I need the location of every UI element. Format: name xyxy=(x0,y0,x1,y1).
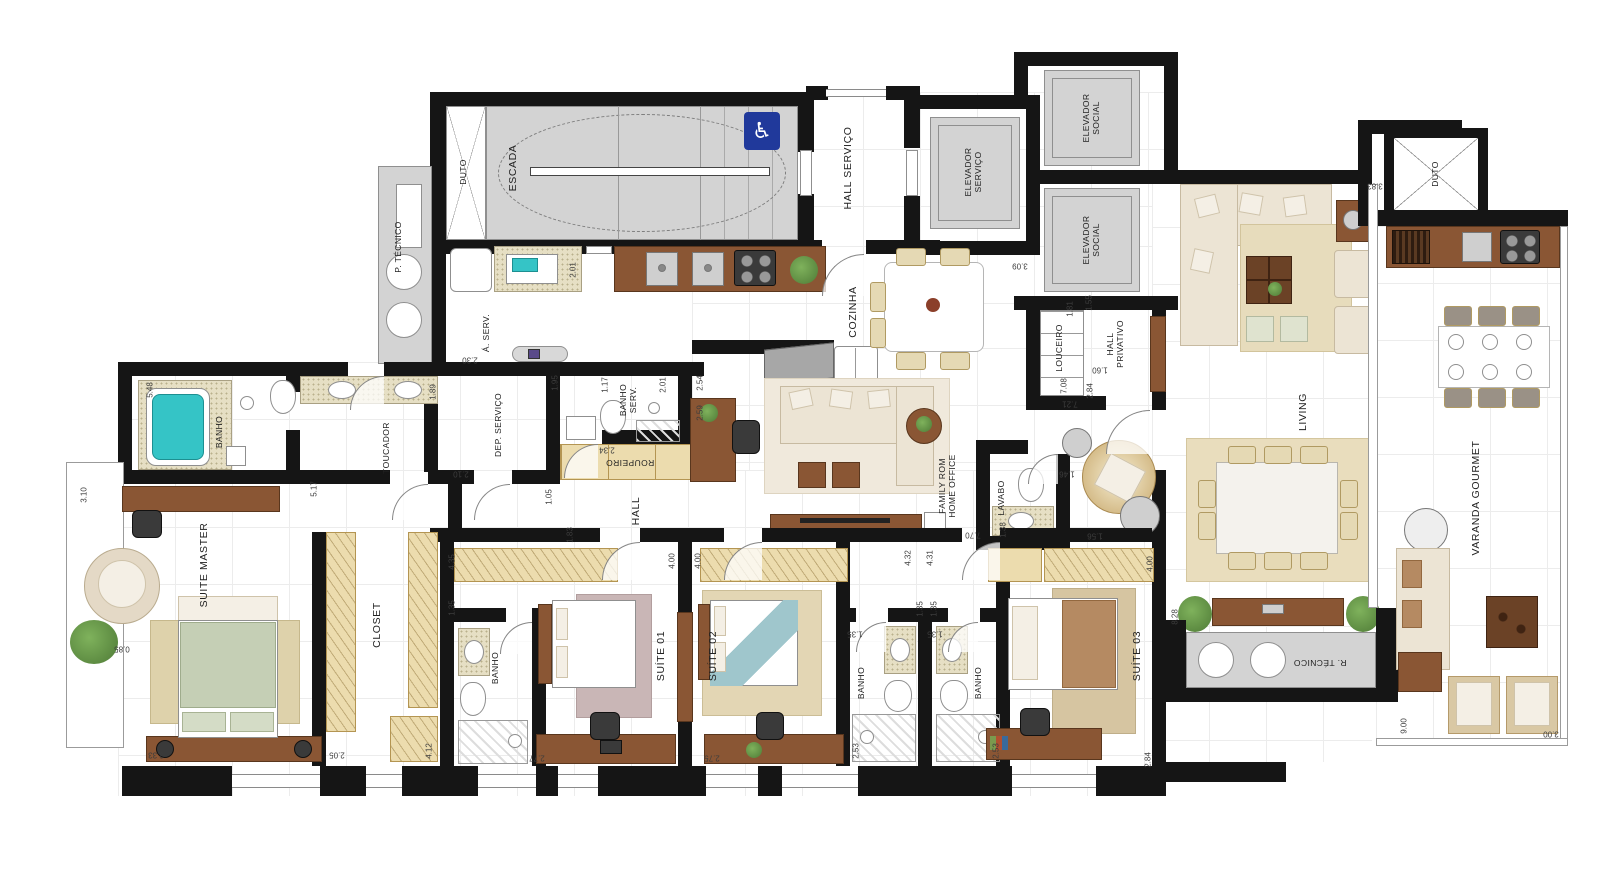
room-label-duto-right: DUTO xyxy=(1431,161,1441,187)
wall xyxy=(402,766,478,796)
wall xyxy=(1014,296,1028,310)
dim-label: 0.85 xyxy=(114,645,130,654)
room-label-living: LIVING xyxy=(1297,393,1309,431)
dim-label: 1.55 xyxy=(1085,295,1094,311)
chair xyxy=(896,352,926,370)
wall xyxy=(118,362,348,376)
bench-speaker xyxy=(294,740,312,758)
room-label-banho-suite1: BANHO xyxy=(491,652,501,684)
pillow xyxy=(829,389,853,410)
dim-label: 3.00 xyxy=(1543,730,1559,739)
round-table xyxy=(1404,508,1448,552)
wall xyxy=(432,240,446,376)
chair xyxy=(1340,480,1358,508)
wall xyxy=(536,766,558,796)
room-label-p-tecnico: P. TÉCNICO xyxy=(394,221,404,272)
wall xyxy=(1000,528,1152,542)
grill xyxy=(1392,230,1430,264)
wardrobe xyxy=(1044,548,1154,582)
dim-label: 1.83 xyxy=(566,527,575,543)
bathtub-water xyxy=(152,394,204,460)
bed-pillow xyxy=(182,712,226,732)
coffee-table-set xyxy=(1246,256,1292,304)
room-label-lavabo: LAVABO xyxy=(997,480,1007,515)
wardrobe xyxy=(408,532,438,708)
desk-chair xyxy=(732,420,760,454)
sink xyxy=(890,638,910,662)
armchair xyxy=(1334,306,1372,354)
room-label-hall-privativo: HALL PRIVATIVO xyxy=(1106,320,1126,368)
dim-label: 1.89 xyxy=(429,384,438,400)
wall xyxy=(546,376,560,484)
fan-coil xyxy=(1198,642,1234,678)
room-label-family-office: FAMILY ROM HOME OFFICE xyxy=(938,454,958,517)
water-heater xyxy=(386,302,422,338)
chair xyxy=(1340,512,1358,540)
dim-label: 4.35 xyxy=(448,554,457,570)
door-leaf xyxy=(906,150,918,196)
iron xyxy=(528,349,540,359)
shower-head xyxy=(648,402,660,414)
sink xyxy=(566,416,596,440)
side-table xyxy=(1398,652,1442,692)
plate xyxy=(1482,364,1498,380)
desk-chair xyxy=(1020,708,1050,736)
bed-pillow xyxy=(556,646,568,678)
wall xyxy=(1166,170,1372,184)
bed-blanket xyxy=(1062,600,1116,688)
pouf xyxy=(832,462,860,488)
dim-label: 4.00 xyxy=(1146,556,1155,572)
dim-label: 3.83 xyxy=(1367,182,1383,191)
dim-label: 2.01 xyxy=(569,262,578,278)
dim-label: 1.81 xyxy=(1066,301,1075,317)
sink-drain xyxy=(658,264,666,272)
chair xyxy=(1300,552,1328,570)
dim-label: 4.31 xyxy=(926,550,935,566)
dim-label: 4.00 xyxy=(668,553,677,569)
wall xyxy=(1164,52,1178,184)
dim-label: 9.00 xyxy=(1400,718,1409,734)
desk-chair xyxy=(756,712,784,740)
chair xyxy=(1512,388,1540,408)
dim-label: 2.77 xyxy=(529,754,545,763)
chair xyxy=(870,282,886,312)
coffee-table xyxy=(1486,596,1538,648)
wall xyxy=(454,608,506,622)
window xyxy=(366,774,402,788)
wall xyxy=(1152,542,1166,766)
wall xyxy=(762,528,962,542)
room-label-toucador: TOUCADOR xyxy=(382,422,392,474)
pillow xyxy=(867,389,891,409)
ironing-board xyxy=(512,346,568,362)
laptop xyxy=(600,740,622,754)
floor-plan: ♿ xyxy=(0,0,1600,888)
plant xyxy=(790,256,818,284)
dim-label: 2.54 xyxy=(696,375,705,391)
bed-headboard xyxy=(538,604,552,684)
dim-label: 2.34 xyxy=(599,446,615,455)
wall xyxy=(758,766,782,796)
water-heater xyxy=(386,254,422,290)
dim-label: 5.48 xyxy=(146,382,155,398)
tv xyxy=(800,518,890,523)
dim-label: 2.75 xyxy=(704,754,720,763)
chair xyxy=(1264,446,1292,464)
room-label-a-serv: Á. SERV. xyxy=(482,314,492,352)
wheelchair-badge: ♿ xyxy=(744,112,780,150)
pouf xyxy=(798,462,826,488)
wall xyxy=(1166,688,1398,702)
wall xyxy=(1166,620,1186,690)
room-label-dep-servico: DEP. SERVIÇO xyxy=(494,393,504,457)
toilet xyxy=(884,680,912,712)
pouf xyxy=(1246,316,1274,342)
wall xyxy=(1028,170,1164,184)
pillow xyxy=(1283,195,1308,218)
dim-label: 1.46 xyxy=(1059,470,1075,479)
dim-label: 1.56 xyxy=(1087,532,1103,541)
sink-drain xyxy=(704,264,712,272)
dim-label: 3.09 xyxy=(1012,262,1028,271)
wall xyxy=(976,440,1028,454)
plate xyxy=(1448,364,1464,380)
sink xyxy=(464,640,484,664)
dim-label: 3.33 xyxy=(148,751,164,760)
wall xyxy=(980,608,1010,622)
dim-label: 1.35 xyxy=(916,601,925,617)
sink xyxy=(394,381,422,399)
dim-label: 4.12 xyxy=(425,743,434,759)
bed-pillow xyxy=(1012,606,1038,680)
wall xyxy=(1026,310,1040,410)
lounge-cushion xyxy=(98,560,146,608)
decor xyxy=(1262,604,1284,614)
pillow xyxy=(1238,192,1263,216)
room-label-banho-2b: BANHO xyxy=(974,667,984,699)
wall-panel xyxy=(677,612,693,722)
table-centerpiece xyxy=(926,298,940,312)
room-label-elevador-social-2: ELEVADOR SOCIAL xyxy=(1082,216,1102,265)
room-label-suite-master: SUITE MASTER xyxy=(198,523,210,608)
chair xyxy=(1198,480,1216,508)
entry-door xyxy=(1150,316,1166,392)
balcony-rail xyxy=(1560,226,1568,744)
window xyxy=(558,774,598,788)
plant xyxy=(746,742,762,758)
dim-label: 2.53 xyxy=(852,743,861,759)
wall xyxy=(806,86,828,100)
dim-label: 2.01 xyxy=(659,377,668,393)
toilet xyxy=(940,680,968,712)
chair xyxy=(940,248,970,266)
fan-coil xyxy=(1250,642,1286,678)
bed-pillow xyxy=(556,608,568,640)
wall xyxy=(312,532,326,766)
sofa-cushion xyxy=(1402,560,1422,588)
wall xyxy=(118,376,132,472)
wall xyxy=(430,92,446,254)
wardrobe xyxy=(454,548,618,582)
window xyxy=(706,774,758,788)
room-label-banho-master: BANHO xyxy=(215,416,225,448)
wall xyxy=(918,622,932,766)
window xyxy=(782,774,858,788)
chair xyxy=(1198,512,1216,540)
dim-label: 2.05 xyxy=(329,751,345,760)
wall xyxy=(858,766,1012,796)
dim-label: 1.38 xyxy=(999,522,1008,538)
wall xyxy=(920,241,1040,255)
dim-label: 2.84 xyxy=(1086,383,1095,399)
wall xyxy=(1014,52,1028,95)
chair xyxy=(896,248,926,266)
plant xyxy=(70,620,118,664)
plate xyxy=(1516,334,1532,350)
room-label-suite-01: SUÍTE 01 xyxy=(655,631,667,681)
desk xyxy=(122,486,280,512)
dim-label: 2.59 xyxy=(696,405,705,421)
chair xyxy=(1228,552,1256,570)
wall xyxy=(920,95,1040,109)
sofa-cushion xyxy=(1402,600,1422,628)
stair-door-leaf xyxy=(800,150,812,196)
toilet xyxy=(460,682,486,716)
pouf xyxy=(1280,316,1308,342)
dim-label: 2.53 xyxy=(992,743,1001,759)
wall xyxy=(640,528,724,542)
plant xyxy=(1268,282,1282,296)
bed-duvet xyxy=(180,622,276,708)
dim-label: 4.00 xyxy=(694,553,703,569)
wall xyxy=(798,92,814,152)
room-label-escada: ESCADA xyxy=(507,145,519,192)
dim-label: 7.70 xyxy=(965,531,981,540)
toilet xyxy=(270,380,296,414)
room-label-suite-03: SUÍTE 03 xyxy=(1131,631,1143,681)
dim-label: 1.05 xyxy=(545,489,554,505)
shower-head xyxy=(860,730,874,744)
chair xyxy=(1444,388,1472,408)
dim-label: 5.17 xyxy=(310,481,319,497)
dim-label: 1.35 xyxy=(448,600,457,616)
wall xyxy=(430,92,814,106)
wardrobe xyxy=(326,532,356,732)
dining-table xyxy=(1216,462,1338,554)
wall xyxy=(836,608,856,622)
room-label-hall: HALL xyxy=(630,497,642,526)
shower-head xyxy=(240,396,254,410)
chair-cushion xyxy=(1456,682,1492,726)
window xyxy=(1012,774,1096,788)
desk-chair xyxy=(132,510,162,538)
plate xyxy=(1448,334,1464,350)
chair xyxy=(1264,552,1292,570)
shower-area xyxy=(636,420,680,442)
room-label-r-tecnico: R. TÉCNICO xyxy=(1294,657,1347,667)
wall xyxy=(430,528,600,542)
dim-label: 2.30 xyxy=(462,356,478,365)
chair xyxy=(1478,306,1506,326)
dim-label: 4.32 xyxy=(904,550,913,566)
window-line xyxy=(1368,184,1378,608)
bed-headboard xyxy=(178,596,278,622)
chair xyxy=(1478,388,1506,408)
wall xyxy=(1376,608,1398,690)
chair xyxy=(1512,306,1540,326)
chair-cushion xyxy=(1514,682,1550,726)
wall xyxy=(1372,210,1568,226)
plate xyxy=(1516,364,1532,380)
room-label-duto: DUTO xyxy=(459,159,469,185)
cooktop xyxy=(1500,230,1540,264)
window xyxy=(826,89,886,97)
room-label-roupeiro: ROUPEIRO xyxy=(606,457,655,467)
chair xyxy=(870,318,886,348)
dim-label: 7.08 xyxy=(1060,378,1069,394)
wall xyxy=(384,362,704,376)
room-label-louceiro: LOUCEIRO xyxy=(1055,324,1065,372)
desk-chair xyxy=(590,712,620,740)
wall xyxy=(1152,762,1286,782)
room-label-closet: CLOSET xyxy=(371,602,383,648)
stair-rail xyxy=(530,167,770,176)
washing-machine xyxy=(450,248,492,292)
room-label-suite-02: SUÍTE 02 xyxy=(707,631,719,681)
room-label-banho-serv: BANHO SERV. xyxy=(619,384,639,416)
chair xyxy=(1228,446,1256,464)
shower-head xyxy=(508,734,522,748)
wall xyxy=(122,766,232,796)
dim-label: 2.10 xyxy=(453,470,469,479)
bed-pillow xyxy=(230,712,274,732)
dim-label: 3.10 xyxy=(80,487,89,503)
dim-label: 8.28 xyxy=(1171,609,1180,625)
dim-label: 1.17 xyxy=(601,377,610,393)
room-label-elevador-servico: ELEVADOR SERVIÇO xyxy=(964,148,984,197)
cooktop xyxy=(734,250,776,286)
wall xyxy=(118,470,390,484)
shower-drain xyxy=(226,446,246,466)
room-label-cozinha: COZINHA xyxy=(847,286,859,337)
dim-label: 7.21 xyxy=(1062,400,1078,409)
dim-label: 1.35 xyxy=(847,630,863,639)
wardrobe xyxy=(700,548,848,582)
room-label-hall-servico: HALL SERVIÇO xyxy=(842,126,854,209)
wall xyxy=(1014,52,1178,66)
dim-label: 1.95 xyxy=(551,375,560,391)
window xyxy=(232,774,320,788)
wall xyxy=(1028,296,1178,310)
window xyxy=(478,774,536,788)
dim-label: 1.35 xyxy=(930,601,939,617)
plant xyxy=(916,416,932,432)
sink xyxy=(1462,232,1492,262)
wall xyxy=(904,86,920,148)
chair xyxy=(940,352,970,370)
balcony-rail xyxy=(1376,738,1568,746)
wall xyxy=(320,766,366,796)
tank-water xyxy=(512,258,538,272)
side-table xyxy=(1062,428,1092,458)
door-leaf xyxy=(586,246,612,254)
dim-label: 2.84 xyxy=(1144,752,1153,768)
wall xyxy=(286,430,300,472)
room-label-elevador-social-1: ELEVADOR SOCIAL xyxy=(1082,94,1102,143)
armchair xyxy=(1334,250,1372,298)
room-label-banho-2a: BANHO xyxy=(857,667,867,699)
chair xyxy=(1300,446,1328,464)
wall xyxy=(598,766,706,796)
dim-label: 1.35 xyxy=(927,630,943,639)
plate xyxy=(1482,334,1498,350)
chair xyxy=(1444,306,1472,326)
room-label-varanda: VARANDA GOURMET xyxy=(1470,441,1482,556)
